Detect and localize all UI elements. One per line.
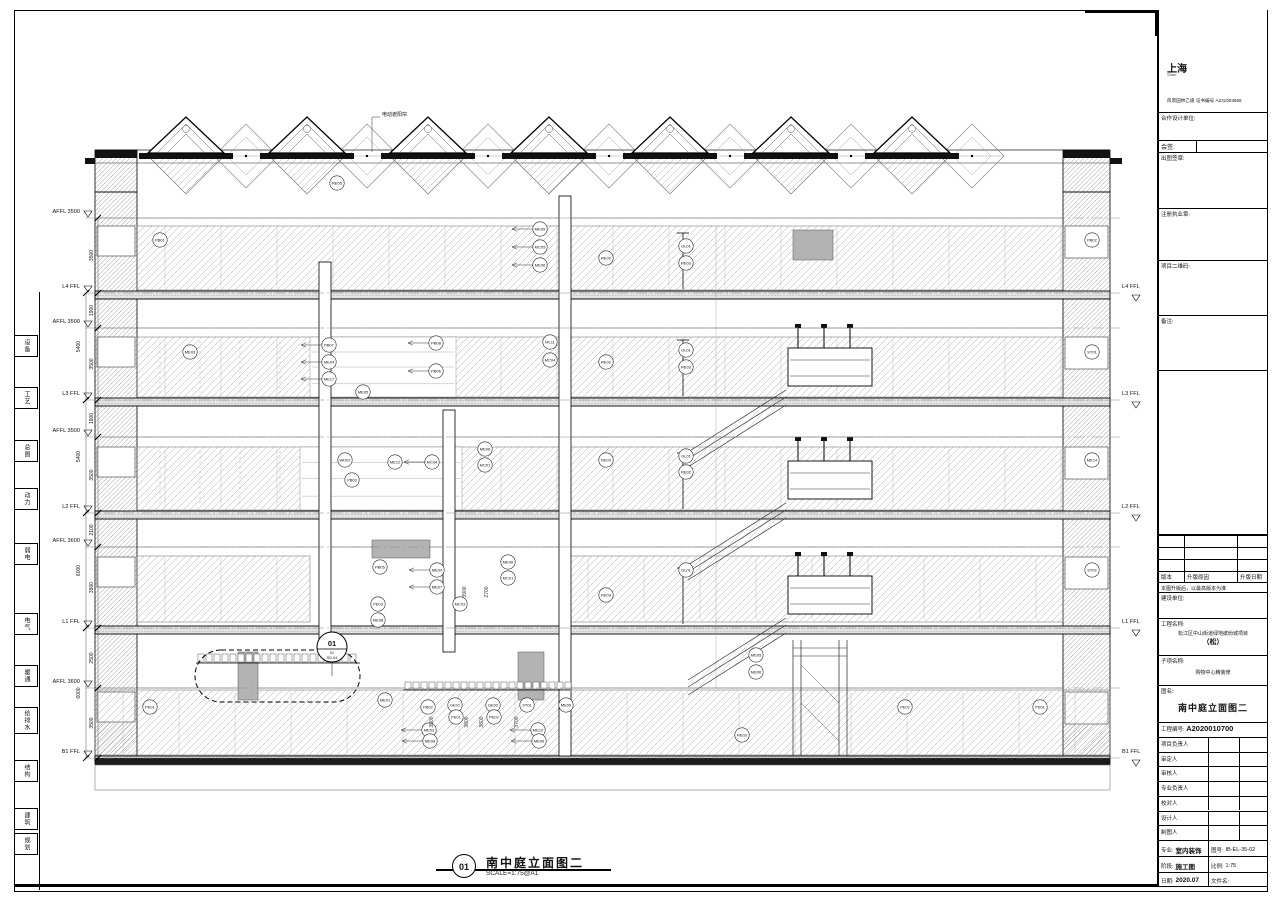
material-tag-code: ME07 bbox=[432, 585, 443, 590]
dimension-text: 5400 bbox=[76, 341, 82, 352]
material-tag-code: PE03 bbox=[373, 602, 384, 607]
personnel-row: 审核人 bbox=[1159, 766, 1267, 781]
dimension-text: 5400 bbox=[76, 451, 82, 462]
material-tag-code: ME05 bbox=[751, 653, 762, 658]
version-note: 本图升版后，以最高版本为准 bbox=[1161, 586, 1226, 592]
material-tag-code: ME06 bbox=[751, 670, 762, 675]
project-name-cell: 工程名称: 松江区中山街道绿地缤纷城项目 （松） bbox=[1159, 618, 1267, 655]
material-tag-code: GL01 bbox=[681, 568, 692, 573]
dimension-text: 3500 bbox=[89, 250, 95, 261]
material-tag-code: GE02 bbox=[488, 703, 499, 708]
date-value: 2020.07 bbox=[1176, 877, 1200, 884]
material-tag-code: PE01 bbox=[145, 705, 156, 710]
material-tag-code: ME06 bbox=[480, 447, 491, 452]
svg-text:SD-04: SD-04 bbox=[327, 656, 338, 660]
material-tag-code: ME10 bbox=[533, 728, 544, 733]
version-header-cell: 升版原因 bbox=[1185, 572, 1238, 582]
level-label-right: B1 FFL bbox=[1122, 749, 1140, 755]
material-tag-code: ME14 bbox=[1087, 458, 1098, 463]
certificate-line: 风景园林乙级 证书编号 A231003666 bbox=[1167, 98, 1242, 104]
material-tag-code: PB05 bbox=[375, 565, 386, 570]
material-tag-code: GL01 bbox=[681, 454, 692, 459]
personnel-label: 项目负责人 bbox=[1159, 738, 1209, 752]
material-tag-code: MC01 bbox=[503, 576, 514, 581]
personnel-label: 设计人 bbox=[1159, 812, 1209, 826]
personnel-row: 审定人 bbox=[1159, 752, 1267, 767]
discipline-cell-暖通: 暖通 bbox=[14, 665, 38, 687]
personnel-label: 专业负责人 bbox=[1159, 782, 1209, 796]
personnel-date-cell bbox=[1240, 812, 1267, 826]
level-label-left bbox=[84, 321, 92, 327]
view-number-bubble: 01 bbox=[452, 854, 476, 878]
dimension-text: 3500 bbox=[89, 469, 95, 480]
personnel-sign-cell bbox=[1209, 738, 1240, 752]
cooperative-label: 合作设计单位: bbox=[1161, 116, 1196, 122]
personnel-date-cell bbox=[1240, 826, 1267, 840]
scale-label: 比例: bbox=[1211, 862, 1224, 870]
discipline-signoff-strip: 设备工艺总图动力弱电电气暖通给排水结构建筑规划 bbox=[14, 10, 40, 892]
level-label-text: L2 FFL bbox=[62, 504, 80, 510]
discipline-cell-弱电: 弱电 bbox=[14, 543, 38, 565]
dimension-text: 1900 bbox=[89, 305, 95, 316]
version-cell bbox=[1238, 560, 1266, 571]
view-title-text: 南中庭立面图二 bbox=[486, 854, 584, 871]
project-name-line1: 松江区中山街道绿地缤纷城项目 bbox=[1161, 630, 1265, 637]
personnel-sign-cell bbox=[1209, 812, 1240, 826]
personnel-row: 专业负责人 bbox=[1159, 781, 1267, 796]
material-tag-code: ME05 bbox=[535, 227, 546, 232]
personnel-label: 审核人 bbox=[1159, 767, 1209, 781]
version-note-cell: 本图升版后，以最高版本为准 bbox=[1159, 582, 1267, 592]
material-tag-code: MC04 bbox=[545, 358, 556, 363]
cooperative-design-unit-cell: 合作设计单位: bbox=[1159, 112, 1267, 140]
material-tag-code: GL01 bbox=[681, 244, 692, 249]
level-label-right: L4 FFL bbox=[1122, 284, 1140, 290]
material-tag-code: RE03 bbox=[681, 365, 692, 370]
version-empty-row bbox=[1159, 547, 1267, 559]
level-label-text: B1 FFL bbox=[62, 749, 80, 755]
version-header-cell: 版本 bbox=[1159, 572, 1185, 582]
personnel-label: 审定人 bbox=[1159, 753, 1209, 767]
material-tag-code: ME12 bbox=[390, 460, 401, 465]
dwgno-value: IB-EL-35-02 bbox=[1226, 847, 1256, 853]
level-label-text: AFFL 3500 bbox=[53, 209, 80, 215]
registration-seal-cell: 注册执业章: bbox=[1159, 208, 1267, 260]
drawing-name-cell: 图名: 南中庭立面图二 bbox=[1159, 685, 1267, 722]
issue-seal-label: 出图签章: bbox=[1161, 156, 1185, 162]
personnel-row: 校对人 bbox=[1159, 796, 1267, 811]
level-label-right: L3 FFL bbox=[1122, 391, 1140, 397]
stage-value: 施工图 bbox=[1176, 861, 1196, 871]
version-header-row: 版本升版原因升版日期 bbox=[1159, 571, 1267, 582]
strip-divider bbox=[39, 292, 40, 890]
elevation-drawing: 电动遮阳帘01IDSD-04AFFL 3500L4 FFLL4 FFLAFFL … bbox=[0, 0, 1280, 904]
countersign-label: 会签: bbox=[1159, 141, 1197, 152]
level-label-left bbox=[84, 681, 92, 687]
version-empty-row bbox=[1159, 535, 1267, 547]
level-label-text: L1 FFL bbox=[62, 619, 80, 625]
dimension-text: 6000 bbox=[76, 565, 82, 576]
client-label: 建设单位: bbox=[1161, 596, 1185, 602]
material-tag-code: PB02 bbox=[423, 705, 434, 710]
dimension-text: 6000 bbox=[76, 687, 82, 698]
material-tag-code: RE02 bbox=[681, 470, 692, 475]
material-tag-code: RE03 bbox=[681, 261, 692, 266]
project-name-label: 工程名称: bbox=[1161, 620, 1265, 628]
material-tag-code: ME06 bbox=[534, 739, 545, 744]
material-tag-code: RE02 bbox=[601, 256, 612, 261]
subproject-name: 购物中心精装修 bbox=[1161, 669, 1265, 676]
view-scale-text: SCALE=1:75@A1 bbox=[486, 870, 538, 877]
firm-logo-en: Shan bbox=[1167, 72, 1176, 77]
personnel-row: 设计人 bbox=[1159, 811, 1267, 826]
title-block: 上海 Shan 风景园林乙级 证书编号 A231003666 合作设计单位: 会… bbox=[1157, 10, 1268, 887]
level-label-left bbox=[84, 540, 92, 546]
discipline-cell-设备: 设备 bbox=[14, 335, 38, 357]
personnel-date-cell bbox=[1240, 797, 1267, 811]
material-tag-code: ME04 bbox=[324, 360, 335, 365]
remark-cell: 备注: bbox=[1159, 315, 1267, 370]
drawing-name: 南中庭立面图二 bbox=[1161, 701, 1265, 714]
scale-value: 1:75 bbox=[1226, 863, 1237, 869]
svg-text:ID: ID bbox=[330, 651, 334, 655]
project-qr-cell: 项目二维码: bbox=[1159, 260, 1267, 315]
version-empty-row bbox=[1159, 559, 1267, 571]
discipline-cell-总图: 总图 bbox=[14, 440, 38, 462]
level-label-left bbox=[84, 430, 92, 436]
version-cell bbox=[1159, 536, 1185, 547]
level-label-text: L3 FFL bbox=[62, 391, 80, 397]
personnel-sign-cell bbox=[1209, 753, 1240, 767]
material-tag-code: ME06 bbox=[535, 263, 546, 268]
material-tag-code: RE03 bbox=[601, 593, 612, 598]
level-label-right: L1 FFL bbox=[1122, 619, 1140, 625]
stage-label: 阶段: bbox=[1161, 862, 1174, 870]
level-label-text: AFFL 3500 bbox=[53, 319, 80, 325]
discipline-cell-结构: 结构 bbox=[14, 760, 38, 782]
personnel-date-cell bbox=[1240, 738, 1267, 752]
version-cell bbox=[1185, 548, 1238, 559]
level-label-text: AFFL 3600 bbox=[53, 538, 80, 544]
discipline-cell-给排水: 给排水 bbox=[14, 707, 38, 734]
discipline-cell-建筑: 建筑 bbox=[14, 808, 38, 830]
personnel-row: 项目负责人 bbox=[1159, 737, 1267, 752]
dimension-text: 2500 bbox=[89, 652, 95, 663]
level-label-text: L4 FFL bbox=[62, 284, 80, 290]
level-label-text: AFFL 3600 bbox=[53, 679, 80, 685]
remark-label: 备注: bbox=[1161, 319, 1174, 325]
material-tag-code: ME01 bbox=[380, 698, 391, 703]
version-cell bbox=[1185, 560, 1238, 571]
firm-logo-area: 上海 Shan 风景园林乙级 证书编号 A231003666 bbox=[1159, 10, 1267, 112]
material-tag-code: MC03 bbox=[455, 602, 466, 607]
countersign-blank bbox=[1197, 141, 1267, 152]
personnel-row: 制图人 bbox=[1159, 825, 1267, 840]
material-tag-code: RE03 bbox=[737, 733, 748, 738]
dimension-text: 3900 bbox=[89, 582, 95, 593]
material-tag-code: ME17 bbox=[324, 377, 335, 382]
material-tag-code: ME05 bbox=[358, 390, 369, 395]
material-tag-code: ME09 bbox=[561, 703, 572, 708]
material-tag-code: PB03 bbox=[347, 478, 358, 483]
drawing-content bbox=[83, 117, 1140, 790]
dimension-text: 3500 bbox=[89, 358, 95, 369]
drawing-name-label: 图名: bbox=[1161, 687, 1265, 695]
material-tag-code: ST02 bbox=[1087, 568, 1097, 573]
material-tag-code: MC04 bbox=[427, 460, 438, 465]
material-tag-code: ME08 bbox=[425, 739, 436, 744]
material-tag-code: RE03 bbox=[601, 458, 612, 463]
project-number-cell: 工程编号: A2020010700 bbox=[1159, 722, 1267, 737]
discipline-cell-动力: 动力 bbox=[14, 488, 38, 510]
stage-row: 阶段: 施工图 比例: 1:75 bbox=[1159, 856, 1267, 872]
drawing-sheet: 电动遮阳帘01IDSD-04AFFL 3500L4 FFLL4 FFLAFFL … bbox=[0, 0, 1280, 904]
version-cell bbox=[1159, 548, 1185, 559]
material-tag-code: RE05 bbox=[332, 181, 343, 186]
project-qr-label: 项目二维码: bbox=[1161, 264, 1190, 270]
material-tag-code: ST01 bbox=[522, 703, 532, 708]
material-tag-code: RE02 bbox=[601, 360, 612, 365]
material-tag-code: WD02 bbox=[339, 458, 351, 463]
personnel-sign-cell bbox=[1209, 826, 1240, 840]
material-tag-code: ML11 bbox=[545, 340, 555, 345]
major-row: 专业: 室内装饰 图号: IB-EL-35-02 bbox=[1159, 840, 1267, 856]
dimension-text: 3500 bbox=[89, 717, 95, 728]
material-tag-code: PE01 bbox=[1035, 705, 1046, 710]
major-label: 专业: bbox=[1161, 846, 1174, 854]
material-tag-code: ST01 bbox=[1087, 350, 1097, 355]
subproject-cell: 子项名称: 购物中心精装修 bbox=[1159, 655, 1267, 685]
personnel-label: 制图人 bbox=[1159, 826, 1209, 840]
material-tag-code: MC01 bbox=[480, 463, 491, 468]
material-tag-code: PB06 bbox=[431, 369, 442, 374]
level-label-right: L2 FFL bbox=[1122, 504, 1140, 510]
dwgno-label: 图号: bbox=[1211, 846, 1224, 854]
subproject-label: 子项名称: bbox=[1161, 657, 1265, 665]
project-number: A2020010700 bbox=[1186, 724, 1233, 733]
issue-seal-cell: 出图签章: bbox=[1159, 152, 1267, 208]
material-tag-code: ME04 bbox=[432, 568, 443, 573]
personnel-sign-cell bbox=[1209, 782, 1240, 796]
dimension-text: 1900 bbox=[89, 413, 95, 424]
material-tag-code: ME03 bbox=[424, 728, 435, 733]
dimension-text: 2100 bbox=[89, 524, 95, 535]
level-label-text: AFFL 3500 bbox=[53, 428, 80, 434]
discipline-cell-电气: 电气 bbox=[14, 613, 38, 635]
material-tag-code: MC05 bbox=[535, 245, 546, 250]
material-tag-code: PB07 bbox=[324, 343, 335, 348]
material-tag-code: PE02 bbox=[900, 705, 911, 710]
personnel-date-cell bbox=[1240, 767, 1267, 781]
dimension-text: 3500 bbox=[429, 716, 435, 727]
discipline-cell-规划: 规划 bbox=[14, 833, 38, 855]
dimension-text: 3900 bbox=[462, 586, 468, 597]
dimension-text: 3600 bbox=[479, 716, 485, 727]
version-cell bbox=[1185, 536, 1238, 547]
discipline-cell-工艺: 工艺 bbox=[14, 387, 38, 409]
filename-label: 文件名: bbox=[1211, 877, 1229, 885]
version-cell bbox=[1238, 536, 1266, 547]
material-tag-code: PB08 bbox=[431, 341, 442, 346]
major-value: 室内装饰 bbox=[1176, 845, 1202, 855]
material-tag-code: ME06 bbox=[503, 560, 514, 565]
registration-seal-label: 注册执业章: bbox=[1161, 212, 1190, 218]
personnel-sign-cell bbox=[1209, 797, 1240, 811]
version-header-cell: 升版日期 bbox=[1238, 572, 1266, 582]
date-label: 日期: bbox=[1161, 877, 1174, 885]
version-cell bbox=[1238, 548, 1266, 559]
svg-text:01: 01 bbox=[328, 639, 336, 648]
sunshade-label: 电动遮阳帘 bbox=[382, 111, 407, 118]
personnel-sign-cell bbox=[1209, 767, 1240, 781]
stamp-box bbox=[1159, 370, 1267, 535]
version-cell bbox=[1159, 560, 1185, 571]
client-cell: 建设单位: bbox=[1159, 592, 1267, 618]
dimension-text: 3800 bbox=[464, 716, 470, 727]
countersign-cell: 会签: bbox=[1159, 140, 1267, 152]
date-row: 日期: 2020.07 文件名: bbox=[1159, 872, 1267, 887]
material-tag-code: GL01 bbox=[681, 348, 692, 353]
dimension-text: 3700 bbox=[514, 716, 520, 727]
level-label-left bbox=[84, 211, 92, 217]
material-tag-code: ME08 bbox=[373, 618, 384, 623]
material-tag-code: PB01 bbox=[155, 238, 166, 243]
dimension-text: 2700 bbox=[484, 586, 490, 597]
material-tag-code: GE01 bbox=[450, 703, 461, 708]
material-tag-code: PB02 bbox=[1087, 238, 1098, 243]
material-tag-code: ME03 bbox=[185, 350, 196, 355]
material-tag-code: PE01 bbox=[451, 715, 462, 720]
material-tag-code: PE02 bbox=[489, 715, 500, 720]
personnel-date-cell bbox=[1240, 782, 1267, 796]
personnel-label: 校对人 bbox=[1159, 797, 1209, 811]
personnel-date-cell bbox=[1240, 753, 1267, 767]
project-number-label: 工程编号: bbox=[1161, 727, 1185, 733]
project-name-line2: （松） bbox=[1161, 637, 1265, 647]
